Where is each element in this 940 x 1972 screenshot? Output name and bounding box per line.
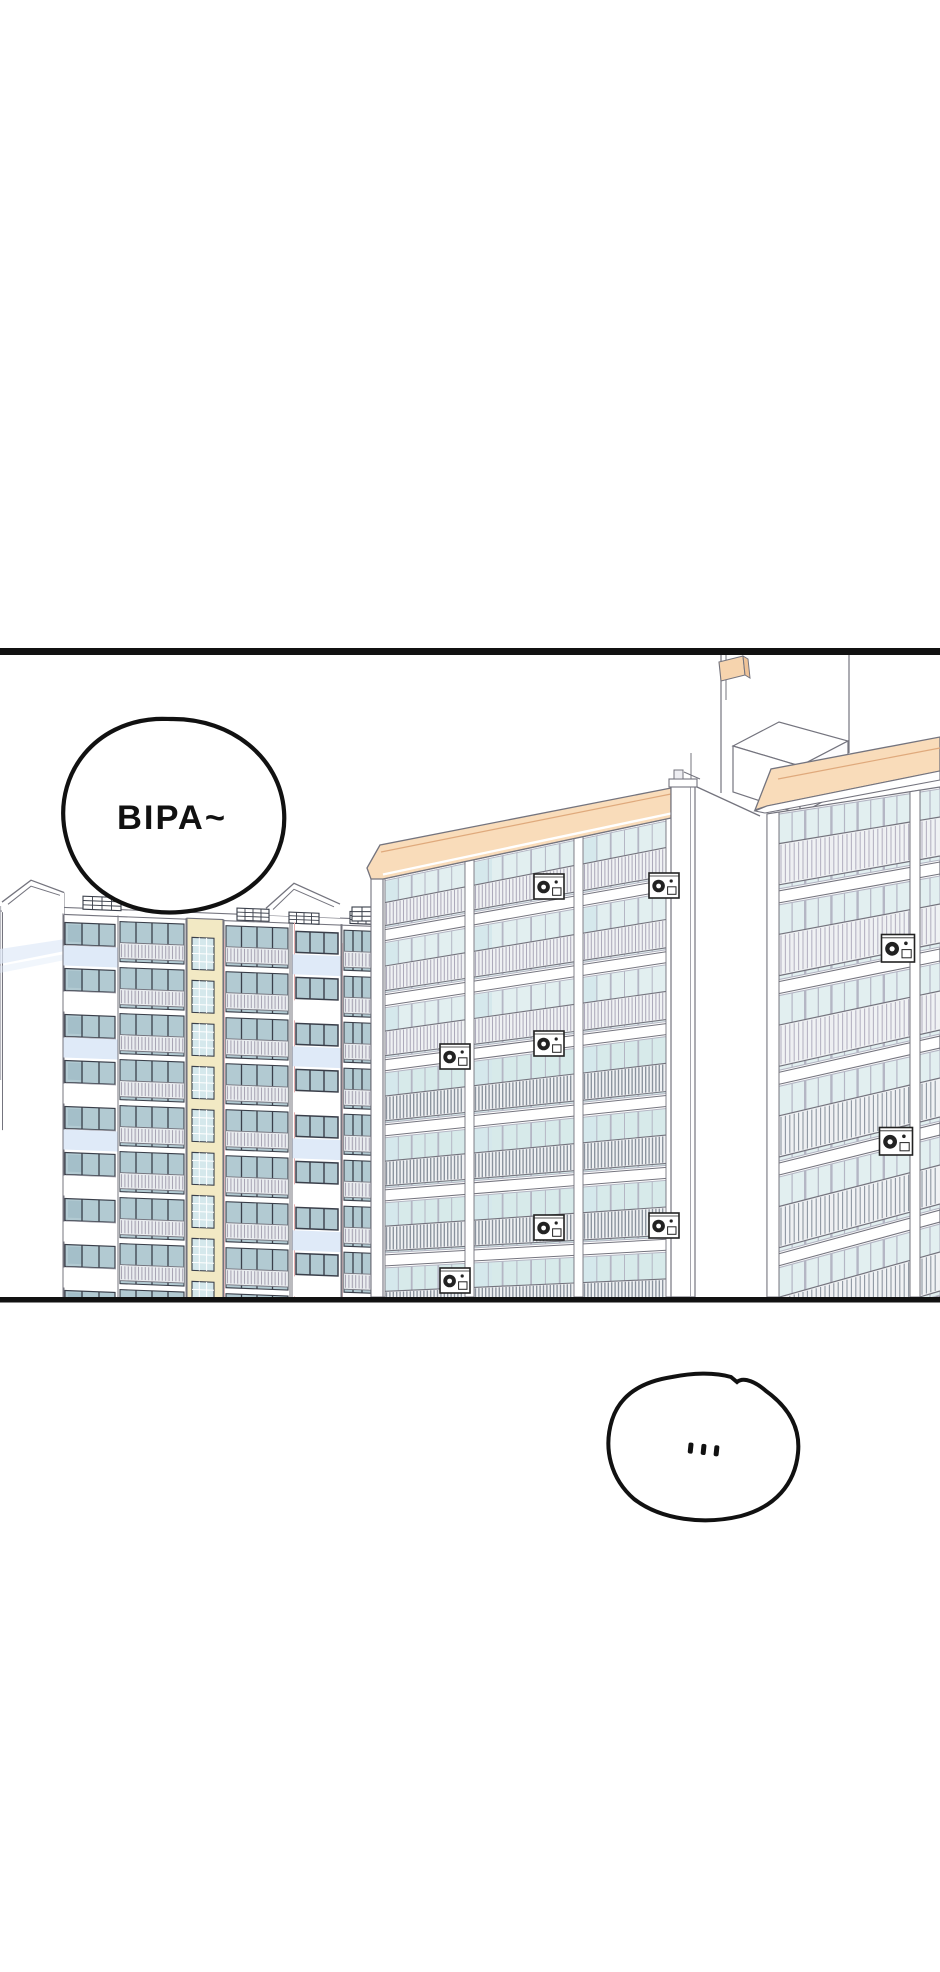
svg-text:BIPA~: BIPA~ — [117, 799, 227, 837]
